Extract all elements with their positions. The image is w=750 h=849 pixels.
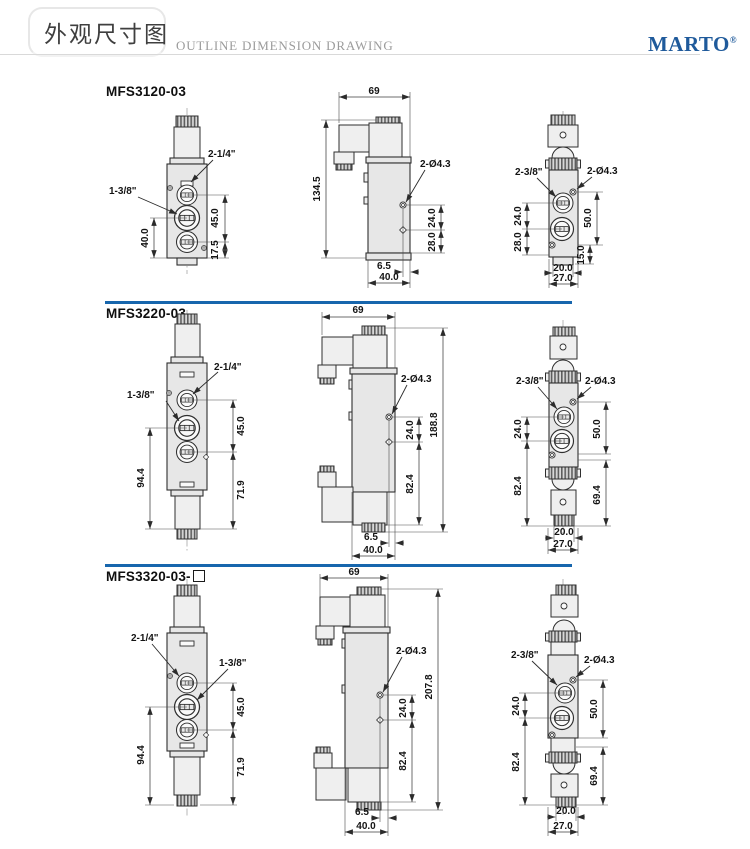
s3-dim-left-lower: 82.4 xyxy=(511,752,522,772)
s2-front-pilot-hole-top xyxy=(167,391,172,396)
s3-dim-right-lower: 69.4 xyxy=(589,766,600,786)
s2-dim-lower: 82.4 xyxy=(405,474,416,494)
section3-drawings: 45.0 71.9 94.4 2-1/4" 1-3/8" xyxy=(0,565,750,849)
s1-dim-hole-edge: 6.5 xyxy=(377,261,391,272)
s1-dim-total-height: 134.5 xyxy=(312,176,323,201)
s1-front-pilot-hole-bottom xyxy=(202,246,207,251)
s3-dim-bottom-inner: 20.0 xyxy=(556,806,576,817)
s3-dim-hole-spacing: 24.0 xyxy=(398,698,409,718)
s2-side-view: 69 188.8 24.0 82.4 6.5 40.0 2-Ø4.3 xyxy=(318,305,448,560)
s2-dim-right-lower: 69.4 xyxy=(592,485,603,505)
s2-dim-hole-spacing: 24.0 xyxy=(405,420,416,440)
s1-side-view: 69 134.5 24.0 28.0 6.5 40.0 2-Ø4.3 xyxy=(312,84,451,288)
s3-rear-hole-top xyxy=(570,677,576,683)
brand-name: MARTO xyxy=(648,32,730,56)
s2-port-label-b: 1-3/8" xyxy=(127,390,155,401)
s3-dim-right-bottom: 71.9 xyxy=(236,757,247,777)
s3-port-label-b: 1-3/8" xyxy=(219,658,247,669)
s2-dim-hole-edge: 6.5 xyxy=(364,532,378,543)
s2-dim-body-depth: 40.0 xyxy=(363,545,383,556)
s2-dim-bottom-outer: 27.0 xyxy=(553,539,573,550)
s3-dim-hole-edge: 6.5 xyxy=(355,807,369,818)
page-title-english: OUTLINE DIMENSION DRAWING xyxy=(176,38,394,54)
s1-front-view: 45.0 17.5 40.0 2-1/4" 1-3/8" xyxy=(109,108,236,274)
s3-side-valve-outline xyxy=(314,587,390,810)
s1-dim-lower: 28.0 xyxy=(427,232,438,252)
s1-dim-right-bottom: 17.5 xyxy=(210,240,221,260)
s1-rear-hole-label: 2-Ø4.3 xyxy=(587,166,618,177)
brand-logo: MARTO® xyxy=(648,32,737,57)
s1-dim-bottom-outer: 27.0 xyxy=(553,273,573,284)
catalog-page: 外观尺寸图 OUTLINE DIMENSION DRAWING MARTO® M… xyxy=(0,0,750,849)
s2-dim-left-lower: 82.4 xyxy=(513,476,524,496)
s3-rear-hole-bottom xyxy=(549,732,555,738)
s1-dim-port-span: 45.0 xyxy=(210,208,221,228)
s1-dim-hole-spacing: 24.0 xyxy=(427,208,438,228)
s1-rear-hole-bottom xyxy=(549,242,555,248)
s1-dim-right-upper: 50.0 xyxy=(583,208,594,228)
s3-mount-hole xyxy=(377,692,383,698)
s3-rear-port-label: 2-3/8" xyxy=(511,650,539,661)
s2-port-label-a: 2-1/4" xyxy=(214,362,242,373)
section1-drawings: 45.0 17.5 40.0 2-1/4" 1-3/8" xyxy=(0,78,750,300)
registered-mark: ® xyxy=(730,35,737,45)
s2-rear-hole-bottom xyxy=(549,452,555,458)
s2-dim-right-bottom: 71.9 xyxy=(236,480,247,500)
s1-dim-left-upper: 24.0 xyxy=(513,206,524,226)
section2-drawings: 45.0 71.9 94.4 2-1/4" 1-3/8" xyxy=(0,302,750,564)
s2-side-valve-outline xyxy=(318,326,397,532)
s2-dim-left: 94.4 xyxy=(136,468,147,488)
s2-rear-view: 24.0 82.4 50.0 69.4 20.0 27.0 2-3/8" 2-Ø… xyxy=(513,320,616,554)
header-rule xyxy=(0,54,700,55)
s2-dim-total-height: 188.8 xyxy=(429,412,440,437)
s1-side-valve-outline xyxy=(334,117,411,260)
s3-dim-lower: 82.4 xyxy=(398,751,409,771)
s2-rear-hole-top xyxy=(570,399,576,405)
s3-dim-left-upper: 24.0 xyxy=(511,696,522,716)
page-title-chinese: 外观尺寸图 xyxy=(44,15,169,49)
s2-dim-right-upper: 50.0 xyxy=(592,419,603,439)
s3-side-hole-label: 2-Ø4.3 xyxy=(396,646,427,657)
s2-rear-port-label: 2-3/8" xyxy=(516,376,544,387)
s3-dim-bottom-outer: 27.0 xyxy=(553,821,573,832)
s3-dim-total-height: 207.8 xyxy=(424,674,435,699)
s3-dim-right-upper: 50.0 xyxy=(589,699,600,719)
s2-front-view: 45.0 71.9 94.4 2-1/4" 1-3/8" xyxy=(127,310,247,552)
s3-rear-view: 24.0 82.4 50.0 69.4 20.0 27.0 2-3/8" 2-Ø… xyxy=(511,579,615,836)
s1-dim-right-lower: 15.0 xyxy=(576,245,587,265)
s1-dim-body-depth: 40.0 xyxy=(379,272,399,283)
s3-dim-width: 69 xyxy=(348,567,360,578)
s1-mount-hole xyxy=(400,202,406,208)
s1-dim-width: 69 xyxy=(368,84,380,95)
s3-dim-body-depth: 40.0 xyxy=(356,821,376,832)
s3-front-view: 45.0 71.9 94.4 2-1/4" 1-3/8" xyxy=(131,579,247,817)
s1-rear-port-label: 2-3/8" xyxy=(515,167,543,178)
s1-dim-left-lower: 28.0 xyxy=(513,232,524,252)
s3-front-pilot-hole-top xyxy=(168,674,173,679)
s1-rear-view: 24.0 28.0 50.0 15.0 20.0 27.0 2-3/8" 2-Ø… xyxy=(513,111,618,288)
s1-port-label-a: 2-1/4" xyxy=(208,149,236,160)
s2-mount-hole xyxy=(386,414,392,420)
s3-dim-left: 94.4 xyxy=(136,745,147,765)
s3-side-view: 69 207.8 24.0 82.4 6.5 40.0 2-Ø4.3 xyxy=(314,567,443,836)
s1-port-label-b: 1-3/8" xyxy=(109,186,137,197)
s2-dim-left-upper: 24.0 xyxy=(513,419,524,439)
s2-rear-hole-label: 2-Ø4.3 xyxy=(585,376,616,387)
s1-front-pilot-hole-top xyxy=(168,186,173,191)
s2-dim-bottom-inner: 20.0 xyxy=(554,527,574,538)
s1-rear-hole-top xyxy=(570,189,576,195)
s1-side-hole-label: 2-Ø4.3 xyxy=(420,159,451,170)
s3-port-label-a: 2-1/4" xyxy=(131,633,159,644)
s2-dim-port-span: 45.0 xyxy=(236,416,247,436)
s3-rear-hole-label: 2-Ø4.3 xyxy=(584,655,615,666)
s1-dim-left: 40.0 xyxy=(140,228,151,248)
s3-dim-port-span: 45.0 xyxy=(236,697,247,717)
s2-dim-width: 69 xyxy=(352,305,364,316)
s2-side-hole-label: 2-Ø4.3 xyxy=(401,374,432,385)
